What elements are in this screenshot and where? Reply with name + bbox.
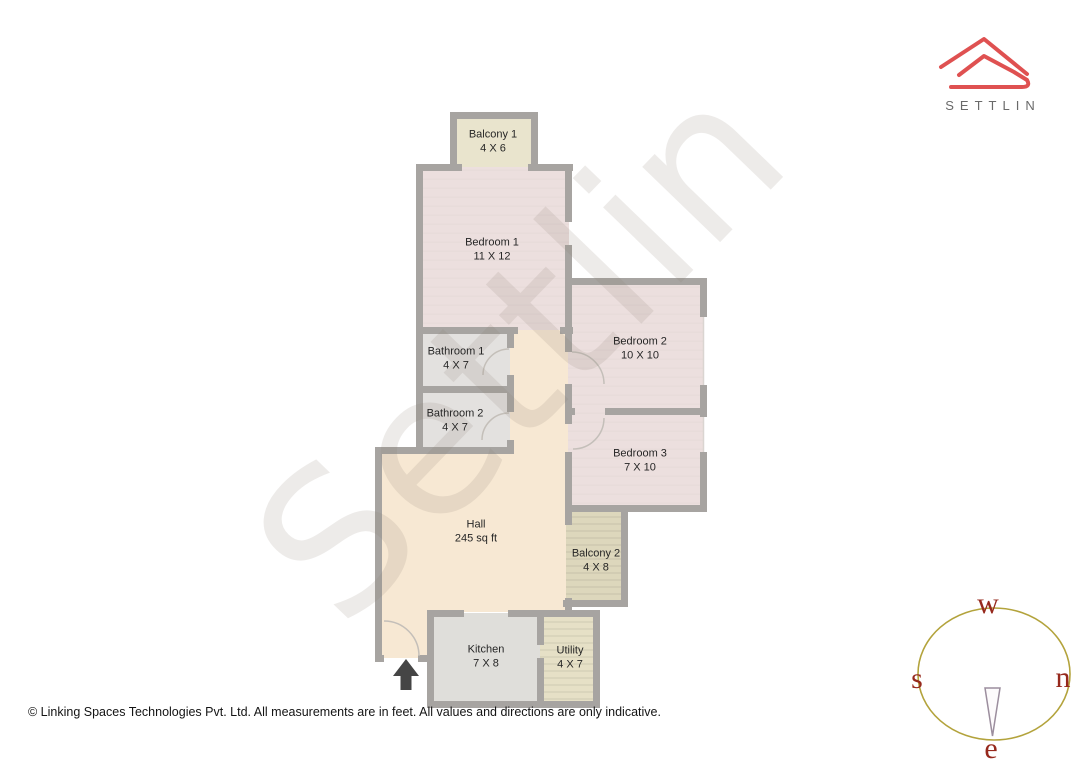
room-size: 4 X 7 [427, 421, 484, 435]
room-label-bathroom-2: Bathroom 2 4 X 7 [427, 408, 484, 435]
compass-east-label: e [984, 732, 997, 764]
footer-note: © Linking Spaces Technologies Pvt. Ltd. … [28, 705, 661, 719]
room-label-hall: Hall 245 sq ft [455, 519, 497, 546]
floor-plan-svg: w s n e [0, 0, 1080, 764]
room-name: Bathroom 2 [427, 408, 484, 422]
room-label-utility: Utility 4 X 7 [557, 645, 584, 672]
room-label-bedroom-2: Bedroom 2 10 X 10 [613, 336, 667, 363]
room-name: Hall [455, 519, 497, 533]
room-label-kitchen: Kitchen 7 X 8 [468, 644, 505, 671]
room-name: Bedroom 1 [465, 237, 519, 251]
room-size: 4 X 8 [572, 561, 620, 575]
compass-needle-icon [985, 688, 1000, 736]
floorplan-canvas: w s n e Settlin Balcony 1 4 X 6 Bedroom … [0, 0, 1080, 764]
compass: w s n e [911, 587, 1070, 764]
compass-north-label: n [1056, 661, 1071, 694]
room-size: 11 X 12 [465, 250, 519, 264]
room-size: 7 X 10 [613, 461, 667, 475]
room-name: Bedroom 3 [613, 448, 667, 462]
brand-wordmark: SETTLIN [925, 98, 1055, 113]
room-size: 4 X 6 [469, 142, 517, 156]
room-size: 4 X 7 [428, 359, 485, 373]
room-label-bedroom-1: Bedroom 1 11 X 12 [465, 237, 519, 264]
room-label-bedroom-3: Bedroom 3 7 X 10 [613, 448, 667, 475]
room-name: Bathroom 1 [428, 346, 485, 360]
room-label-bathroom-1: Bathroom 1 4 X 7 [428, 346, 485, 373]
room-name: Balcony 1 [469, 129, 517, 143]
entrance-arrow-icon [393, 659, 419, 690]
room-label-balcony-2: Balcony 2 4 X 8 [572, 548, 620, 575]
room-name: Kitchen [468, 644, 505, 658]
brand-block: SETTLIN [925, 28, 1055, 113]
brand-logo-spacer [925, 28, 1055, 96]
room-size: 4 X 7 [557, 658, 584, 672]
compass-south-label: s [911, 662, 923, 695]
room-size: 10 X 10 [613, 349, 667, 363]
room-label-balcony-1: Balcony 1 4 X 6 [469, 129, 517, 156]
room-name: Utility [557, 645, 584, 659]
room-name: Bedroom 2 [613, 336, 667, 350]
room-size: 245 sq ft [455, 532, 497, 546]
compass-west-label: w [977, 587, 999, 620]
room-name: Balcony 2 [572, 548, 620, 562]
room-size: 7 X 8 [468, 657, 505, 671]
